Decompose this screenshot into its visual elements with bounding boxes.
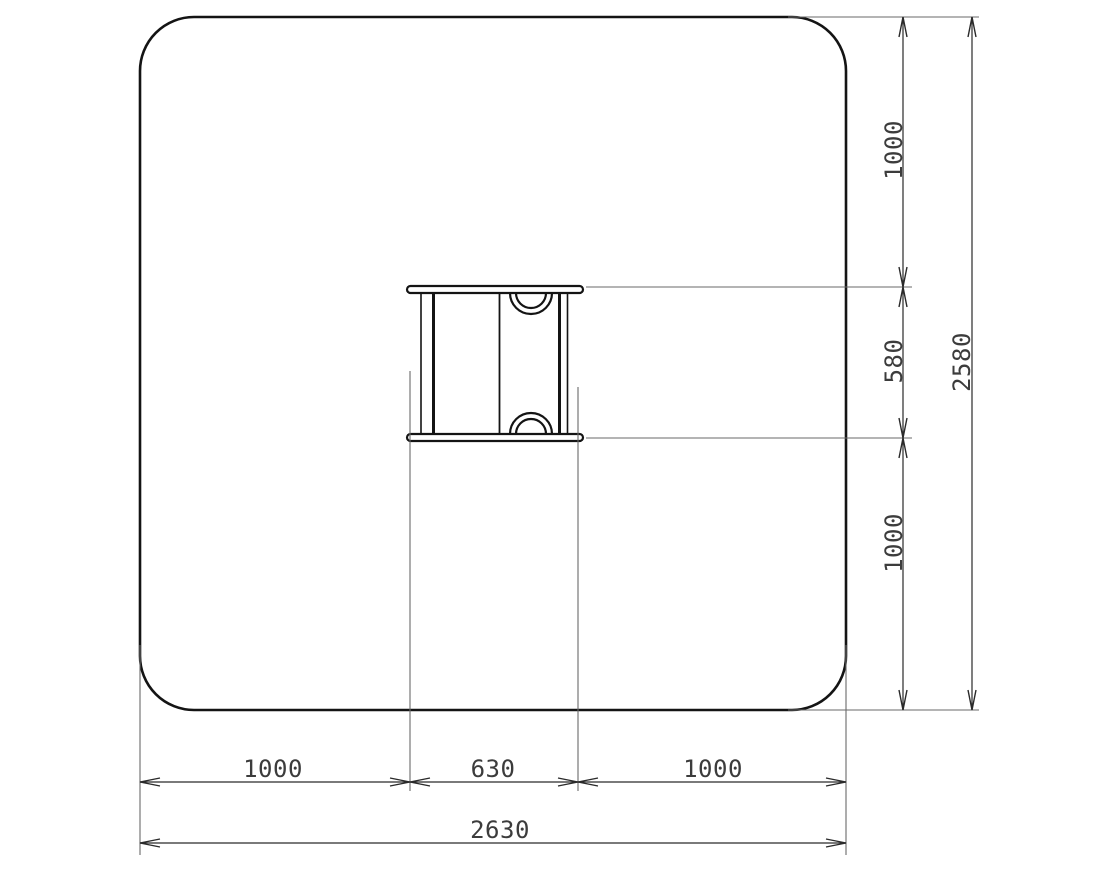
dim-label-bottom-middle: 630 [471, 755, 516, 783]
dim-label-bottom-overall: 2630 [470, 816, 530, 844]
dim-label-right-bottom: 1000 [880, 513, 908, 573]
dim-label-bottom-left: 1000 [243, 755, 303, 783]
top-plate [407, 286, 583, 293]
bottom-plate [407, 434, 583, 441]
dim-label-right-top: 1000 [880, 120, 908, 180]
dim-label-right-middle: 580 [880, 339, 908, 384]
rounded-square-outline [140, 17, 846, 710]
dim-label-right-overall: 2580 [948, 332, 976, 392]
drawing-canvas: 1000 630 1000 2630 1000 580 1000 2580 [0, 0, 1110, 879]
dim-label-bottom-right: 1000 [683, 755, 743, 783]
technical-drawing: 1000 630 1000 2630 1000 580 1000 2580 [0, 0, 1110, 879]
